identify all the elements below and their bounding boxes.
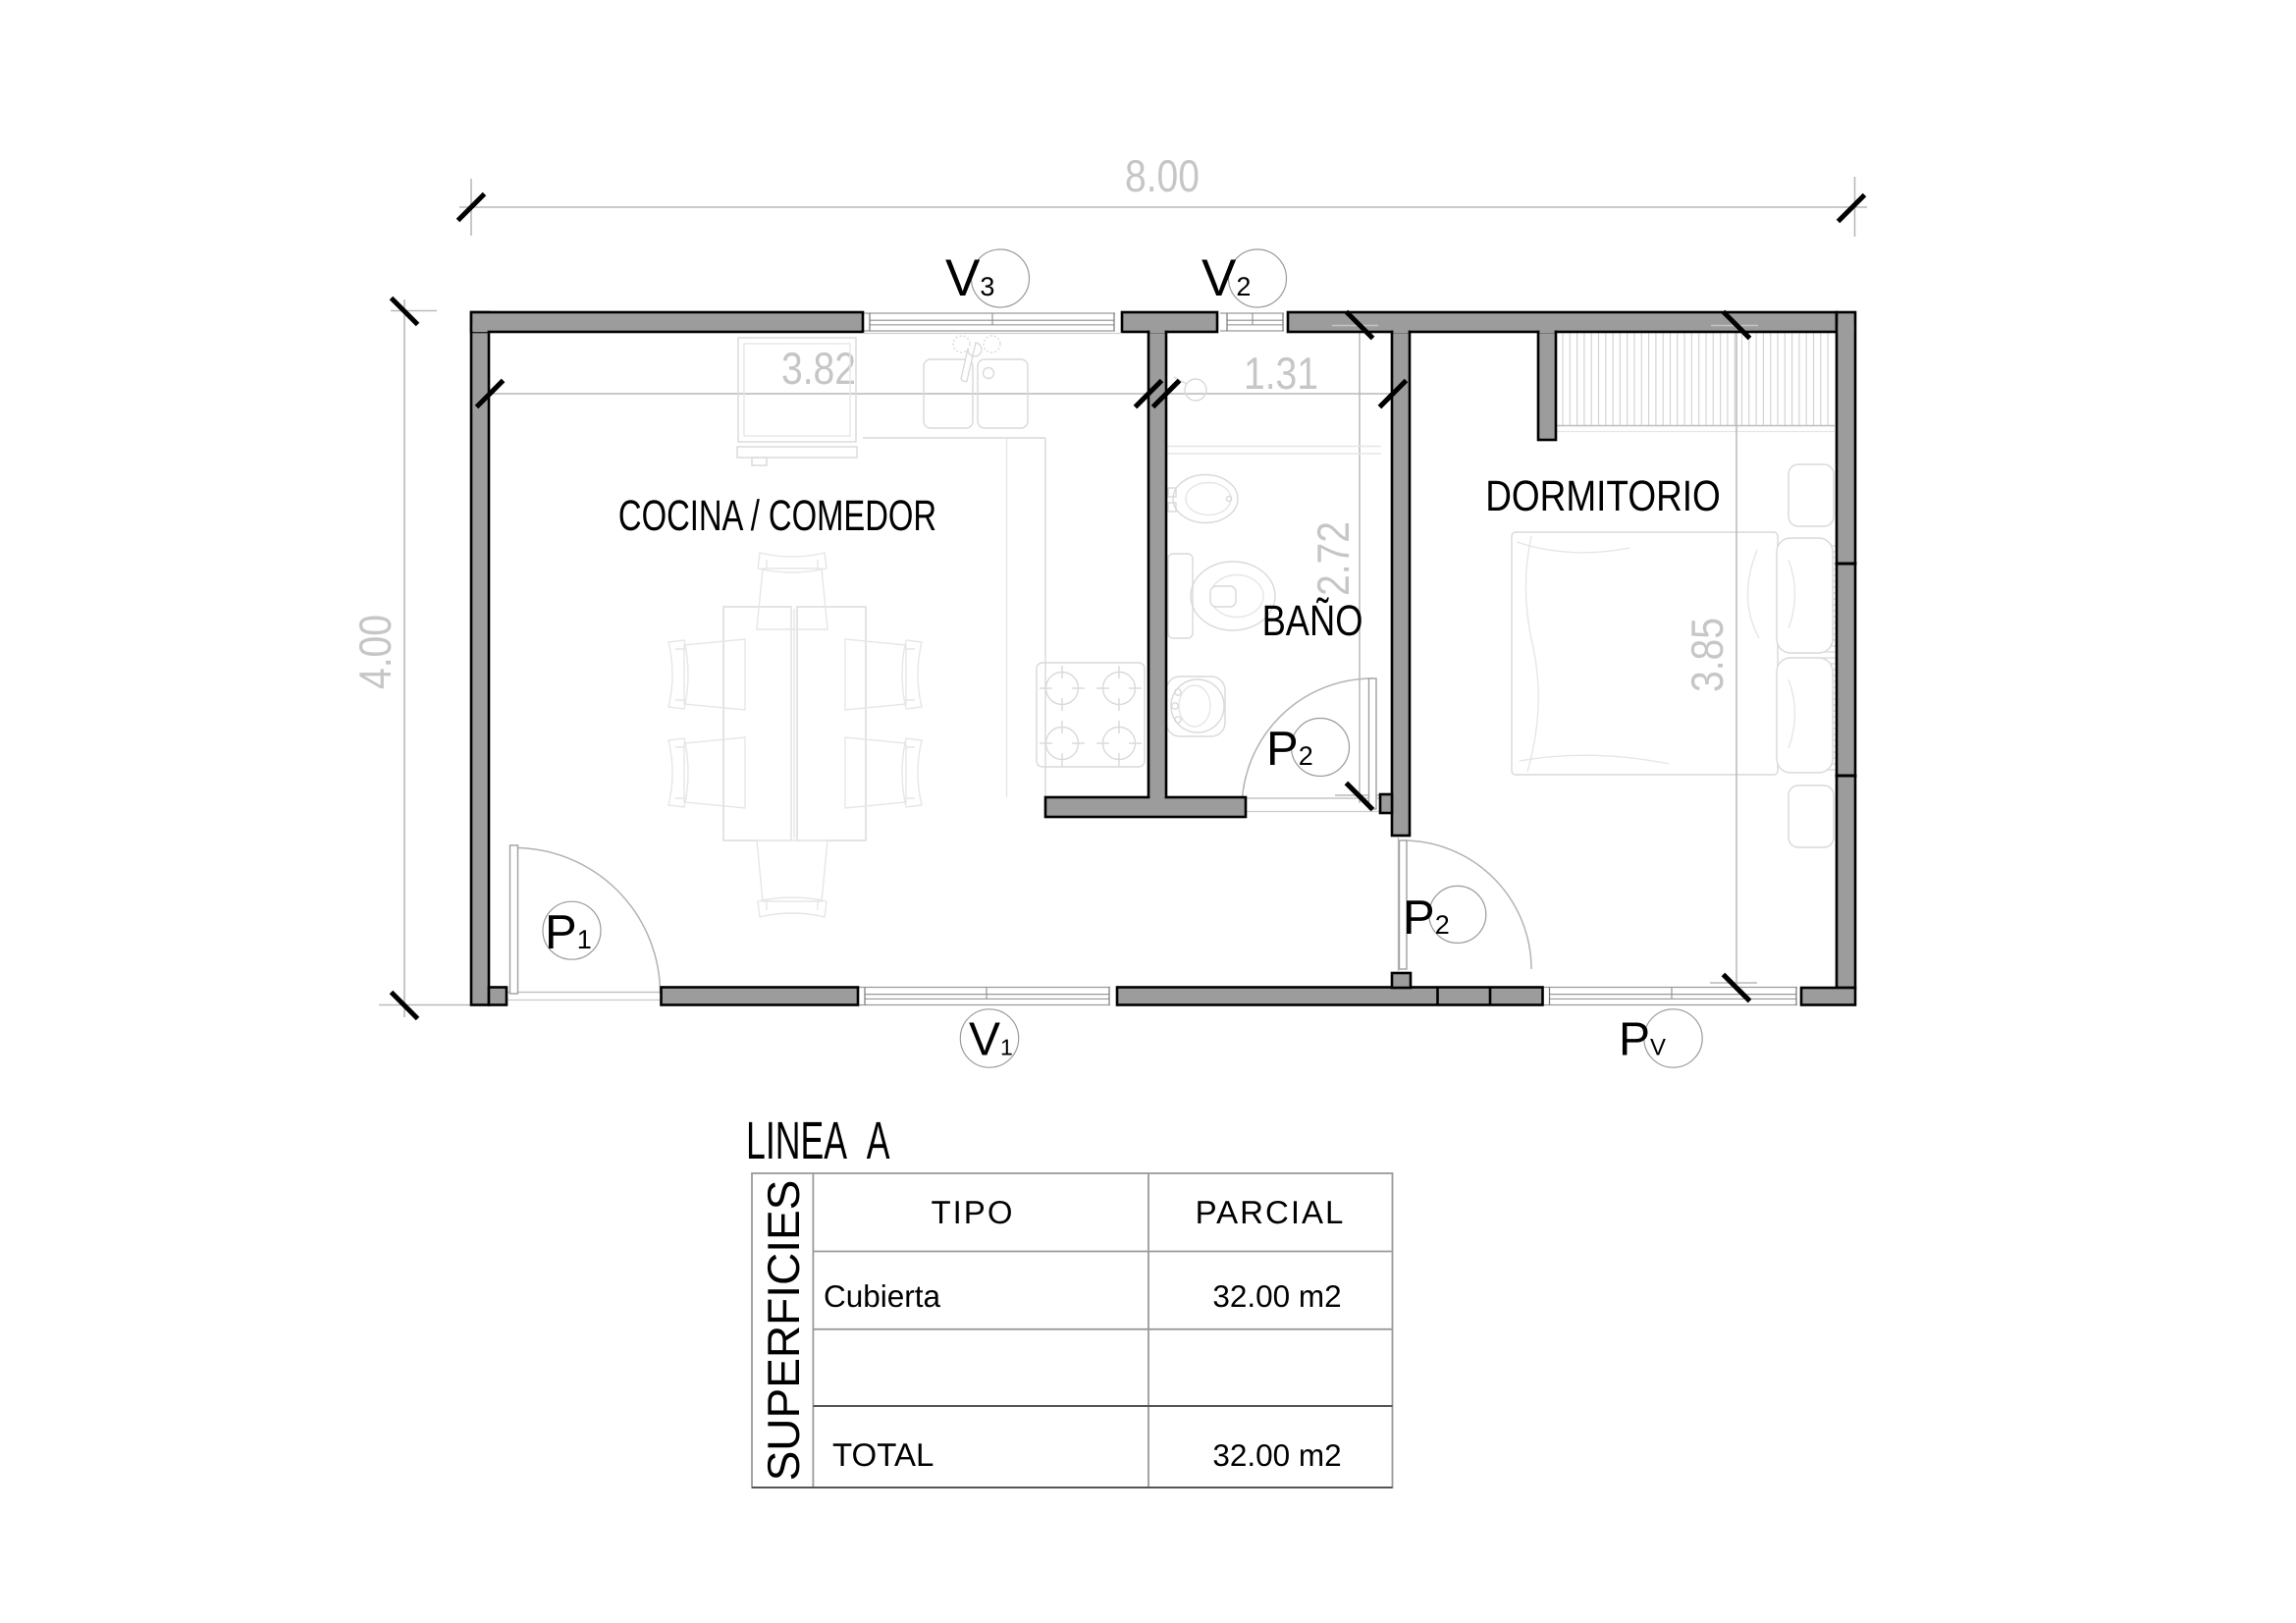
svg-text:2.72: 2.72 <box>1308 521 1359 596</box>
svg-text:SUPERFICIES: SUPERFICIES <box>758 1180 809 1482</box>
svg-text:8.00: 8.00 <box>1125 150 1200 201</box>
svg-text:LINEA A: LINEA A <box>746 1111 890 1170</box>
svg-text:32.00 m2: 32.00 m2 <box>1212 1437 1341 1473</box>
svg-text:3.82: 3.82 <box>781 343 856 394</box>
svg-text:TOTAL: TOTAL <box>832 1436 934 1473</box>
svg-text:TIPO: TIPO <box>931 1194 1014 1230</box>
svg-text:DORMITORIO: DORMITORIO <box>1485 472 1721 520</box>
svg-text:BAÑO: BAÑO <box>1262 597 1363 645</box>
svg-text:1.31: 1.31 <box>1244 348 1318 399</box>
svg-text:3.85: 3.85 <box>1682 618 1733 692</box>
svg-text:Cubierta: Cubierta <box>824 1278 941 1314</box>
svg-text:PARCIAL: PARCIAL <box>1196 1194 1346 1230</box>
svg-text:COCINA / COMEDOR: COCINA / COMEDOR <box>618 492 936 540</box>
svg-text:4.00: 4.00 <box>349 615 400 689</box>
svg-text:32.00 m2: 32.00 m2 <box>1212 1278 1341 1314</box>
